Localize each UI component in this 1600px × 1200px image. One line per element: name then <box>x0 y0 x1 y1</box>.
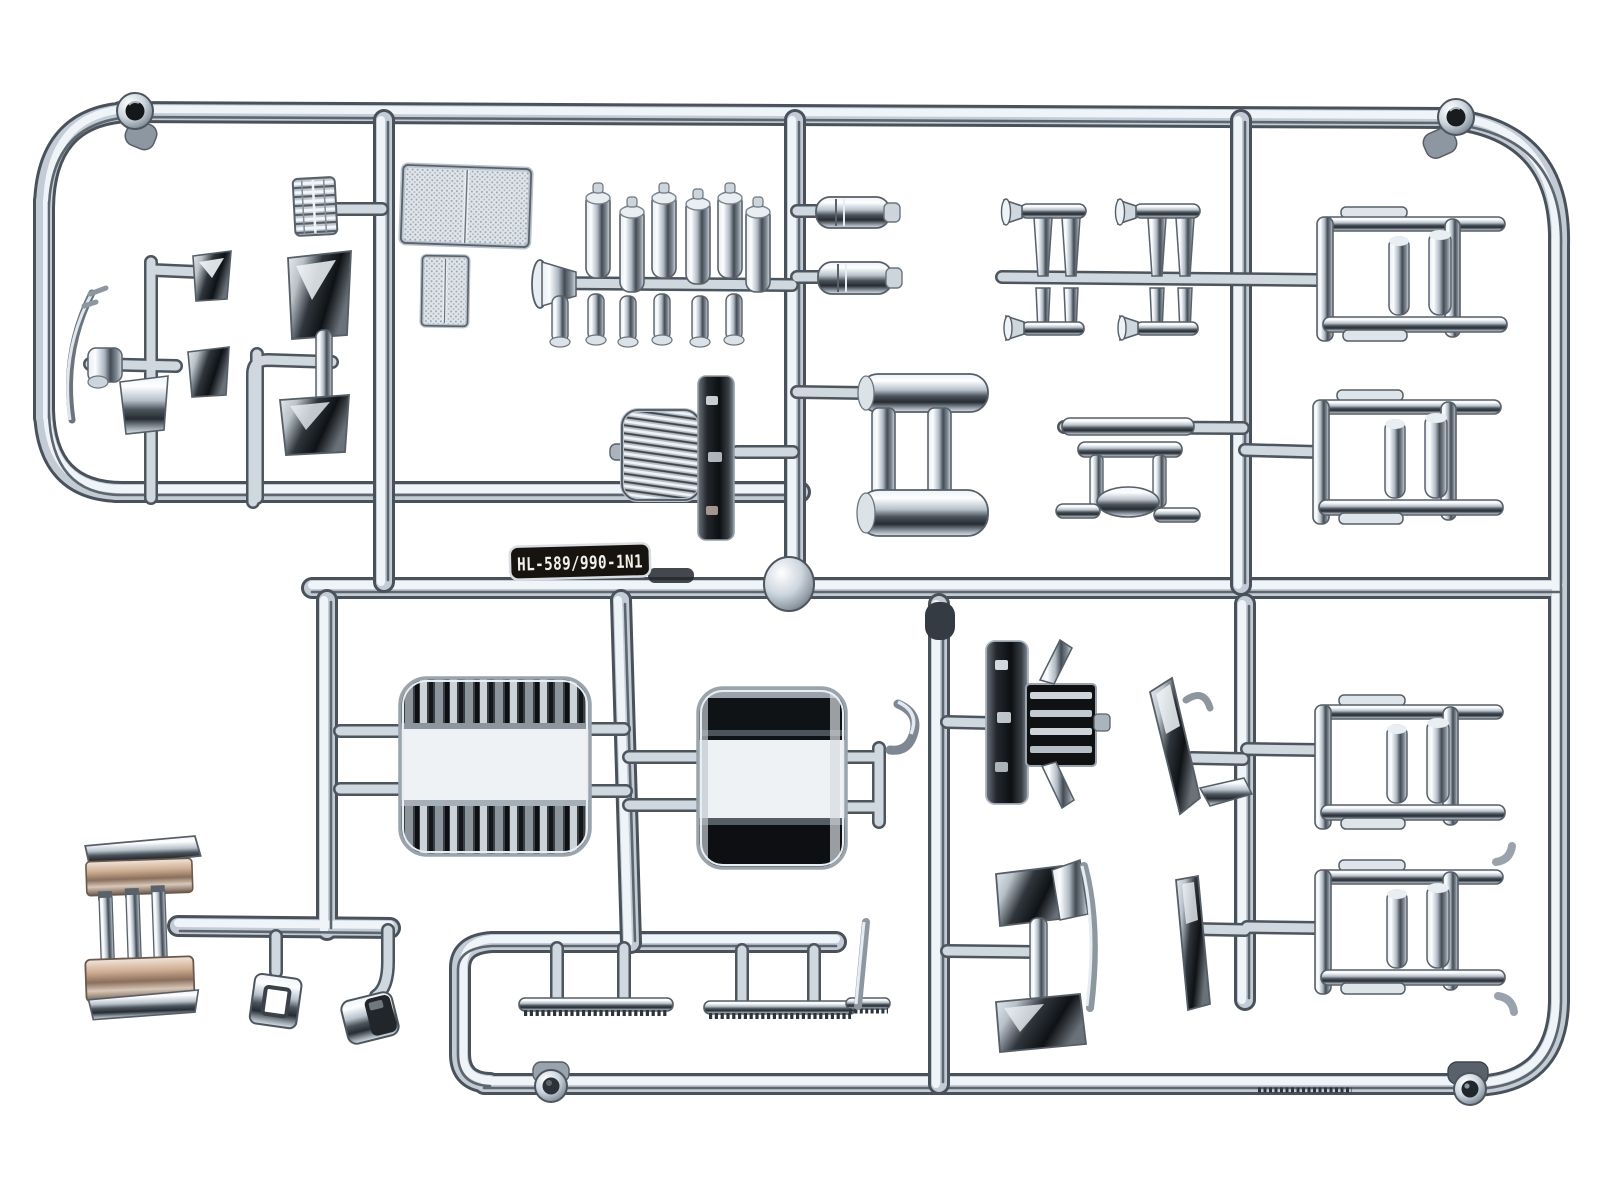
gate-tab <box>925 602 955 640</box>
mesh-grille-small <box>421 256 468 327</box>
label-text: HL-589/990-1N1 <box>517 551 644 575</box>
step-frame-brackets <box>1313 207 1514 1012</box>
gate-mark <box>648 568 694 583</box>
front-grille-assembly <box>986 640 1110 808</box>
grille-wing-bottom <box>1042 762 1074 808</box>
sprue-photo: HL-589/990-1N1 <box>0 0 1600 1200</box>
bracket-stool-part <box>1056 418 1200 522</box>
engine-stack-cluster <box>532 183 770 347</box>
fuel-tank-large-1 <box>400 678 590 856</box>
fuel-tank-large-2 <box>698 688 848 868</box>
canister-part <box>339 990 400 1045</box>
air-cleaner-with-panel <box>610 376 734 540</box>
air-horn-pairs <box>1002 199 1201 340</box>
bracket-wedge <box>120 376 168 434</box>
roll-bar-h-frame <box>857 374 988 536</box>
muffler-cylinders <box>816 197 902 294</box>
mirror-head-small-2 <box>188 347 229 397</box>
mounting-boss-bottom-left <box>533 1062 569 1102</box>
square-ring-part <box>249 973 303 1029</box>
mirror-and-wiper-cluster <box>68 251 351 455</box>
ribbed-step-plate <box>293 177 338 236</box>
sprue-label: HL-589/990-1N1 <box>510 543 651 580</box>
mounting-boss-bottom-right <box>1448 1062 1488 1105</box>
grille-wing-top <box>1040 640 1072 684</box>
screenshot-root: HL-589/990-1N1 <box>0 0 1600 1200</box>
mesh-grille-large <box>401 165 532 247</box>
central-gate-boss <box>764 557 814 611</box>
